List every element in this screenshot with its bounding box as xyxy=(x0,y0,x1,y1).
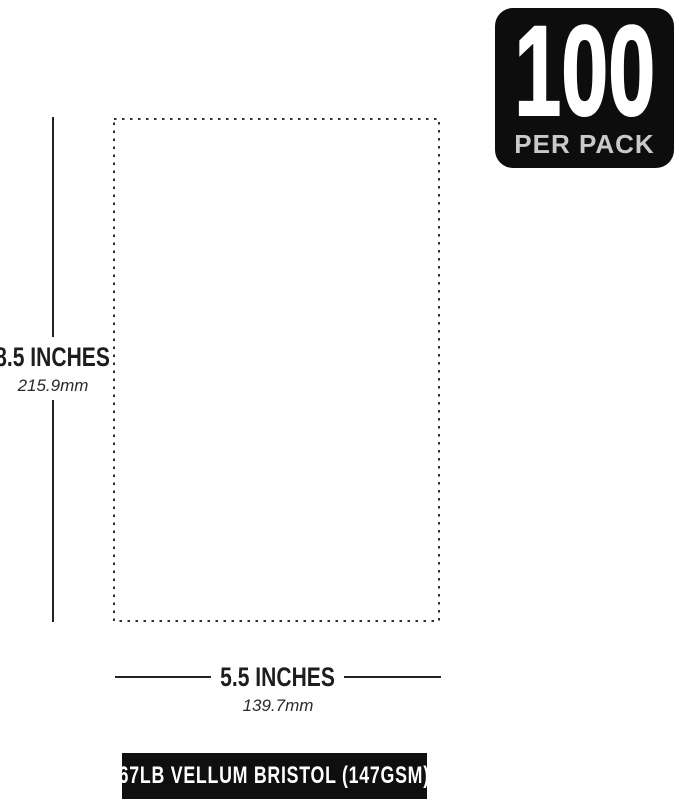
per-pack-badge: 100 PER PACK xyxy=(495,8,674,168)
height-dimension-line-bottom xyxy=(52,400,54,622)
paper-spec-label: 67LB VELLUM BRISTOL (147GSM) xyxy=(119,764,430,788)
width-metric-label: 139.7mm xyxy=(243,697,314,714)
width-inches-label: 5.5 INCHES xyxy=(221,664,336,691)
pack-count: 100 xyxy=(514,22,655,122)
height-metric-label: 215.9mm xyxy=(18,377,89,394)
product-dimension-diagram: 8.5 INCHES 215.9mm 5.5 INCHES 139.7mm 10… xyxy=(0,0,679,801)
paper-spec-bar: 67LB VELLUM BRISTOL (147GSM) xyxy=(122,753,427,799)
height-dimension-label-group: 8.5 INCHES 215.9mm xyxy=(0,344,203,394)
height-inches-label: 8.5 INCHES xyxy=(0,344,110,371)
width-dimension-label-group: 5.5 INCHES 139.7mm xyxy=(128,664,428,714)
height-dimension-line-top xyxy=(52,117,54,337)
